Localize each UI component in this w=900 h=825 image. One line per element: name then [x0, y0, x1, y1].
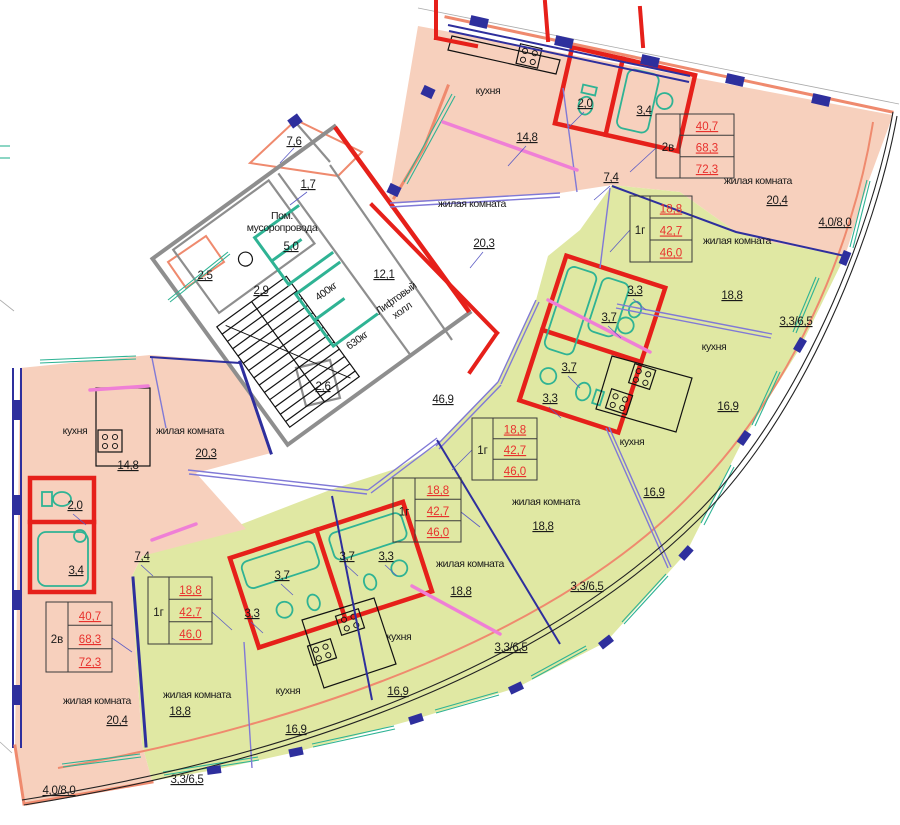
room-area-bath: 3,4 [636, 105, 652, 117]
apartment-type: 1г [477, 445, 488, 457]
lift-hall-area: 12,1 [373, 269, 394, 281]
room-area-bath: 3,7 [274, 570, 289, 582]
room-label-living: жилая комната [163, 689, 232, 701]
room-area-bath: 3,7 [561, 362, 576, 374]
room-fills [15, 26, 893, 806]
room-area-living: 18,8 [721, 290, 742, 302]
apartment-total-area: 72,3 [696, 164, 718, 176]
room-area-living: 20,3 [195, 448, 216, 460]
garbage-room-area: 5,0 [283, 241, 298, 253]
room-label-kitchen: кухня [620, 436, 645, 448]
room-label-kitchen: кухня [702, 341, 727, 353]
balcony-area: 4,0/8,0 [818, 217, 851, 229]
apartment-type: 1г [153, 607, 164, 619]
room-area-living: 18,8 [532, 521, 553, 533]
floor-plan: 7,6 1,7 Пом. мусоропровода 5,0 2,5 2,9 4… [0, 0, 900, 825]
room-label-kitchen: кухня [476, 85, 501, 97]
room-area-bath: 3,4 [68, 565, 84, 577]
tick-mark [0, 300, 14, 311]
tick-mark [0, 742, 12, 753]
room-area-living: 18,8 [450, 586, 471, 598]
room-label-living: жилая комната [436, 558, 505, 570]
floor-plan-canvas: 7,6 1,7 Пом. мусоропровода 5,0 2,5 2,9 4… [0, 0, 900, 825]
corridor-area: 46,9 [432, 394, 453, 406]
apartment-type: 1г [635, 225, 646, 237]
balcony-area: 4,0/8,0 [42, 785, 75, 797]
room-area-hall: 3,3 [244, 608, 259, 620]
apartment-type: 2в [662, 142, 675, 154]
dim-bottom: 2,6 [315, 381, 330, 393]
apartment-total-area: 46,0 [427, 527, 449, 539]
room-area-living: 18,8 [169, 706, 190, 718]
room-area-kitchen: 14,8 [117, 460, 138, 472]
room-area-hall: 3,3 [378, 551, 393, 563]
apartment-area: 68,3 [696, 143, 718, 155]
balcony-area: 3,3/6,5 [570, 581, 603, 593]
room-area-living: 20,4 [106, 715, 128, 727]
apartment-living-area: 18,8 [660, 204, 682, 216]
room-area-living: 20,3 [473, 238, 494, 250]
room-label-living: жилая комната [703, 235, 772, 247]
room-label-living: жилая комната [63, 695, 132, 707]
apartment-living-area: 18,8 [427, 485, 449, 497]
dim-niche: 1,7 [300, 179, 315, 191]
room-area-hall: 7,4 [134, 551, 150, 563]
room-area-kitchen: 14,8 [516, 132, 537, 144]
apartment-living-area: 40,7 [696, 121, 718, 133]
apartment-type: 1г [399, 507, 410, 519]
room-area-bath: 3,7 [601, 312, 616, 324]
dim-balcony-left: 2,5 [197, 270, 212, 282]
room-area-hall: 3,3 [627, 285, 642, 297]
apartment-area: 68,3 [79, 634, 101, 646]
dim-balcony-top: 7,6 [286, 136, 301, 148]
room-area-kitchen: 16,9 [285, 724, 306, 736]
apartment-area: 42,7 [504, 445, 526, 457]
garbage-room-label: мусоропровода [247, 222, 318, 234]
apartment-area: 42,7 [179, 607, 201, 619]
apartment-living-area: 18,8 [504, 425, 526, 437]
room-label-kitchen: кухня [387, 631, 412, 643]
apartment-area: 42,7 [427, 506, 449, 518]
room-area-wc: 2,0 [67, 500, 82, 512]
room-area-kitchen: 16,9 [717, 401, 738, 413]
room-area-wc: 2,0 [577, 98, 592, 110]
room-area-hall: 7,4 [603, 172, 619, 184]
apartment-type: 2в [51, 634, 64, 646]
garbage-room-label: Пом. [271, 210, 293, 222]
apartment-total-area: 46,0 [660, 248, 682, 260]
room-area-bath: 3,7 [339, 551, 354, 563]
room-area-living: 20,4 [766, 195, 788, 207]
apartment-living-area: 18,8 [179, 585, 201, 597]
room-area-kitchen: 16,9 [387, 686, 408, 698]
apartment-area: 42,7 [660, 226, 682, 238]
apartment-total-area: 46,0 [179, 629, 201, 641]
room-label-living: жилая комната [156, 425, 225, 437]
room-label-kitchen: кухня [276, 685, 301, 697]
room-label-living: жилая комната [438, 198, 507, 210]
room-area-hall: 3,3 [542, 393, 557, 405]
balcony-area: 3,3/6,5 [170, 774, 203, 786]
balcony-area: 3,3/6,5 [494, 642, 527, 654]
dim-stair: 2,9 [253, 285, 268, 297]
apartment-total-area: 72,3 [79, 657, 101, 669]
room-label-kitchen: кухня [63, 425, 88, 437]
room-label-living: жилая комната [512, 496, 581, 508]
balcony-area: 3,3/6,5 [779, 316, 812, 328]
corridor-red-wall-2 [470, 333, 497, 372]
room-area-kitchen: 16,9 [643, 487, 664, 499]
apartment-living-area: 40,7 [79, 611, 101, 623]
apartment-total-area: 46,0 [504, 466, 526, 478]
